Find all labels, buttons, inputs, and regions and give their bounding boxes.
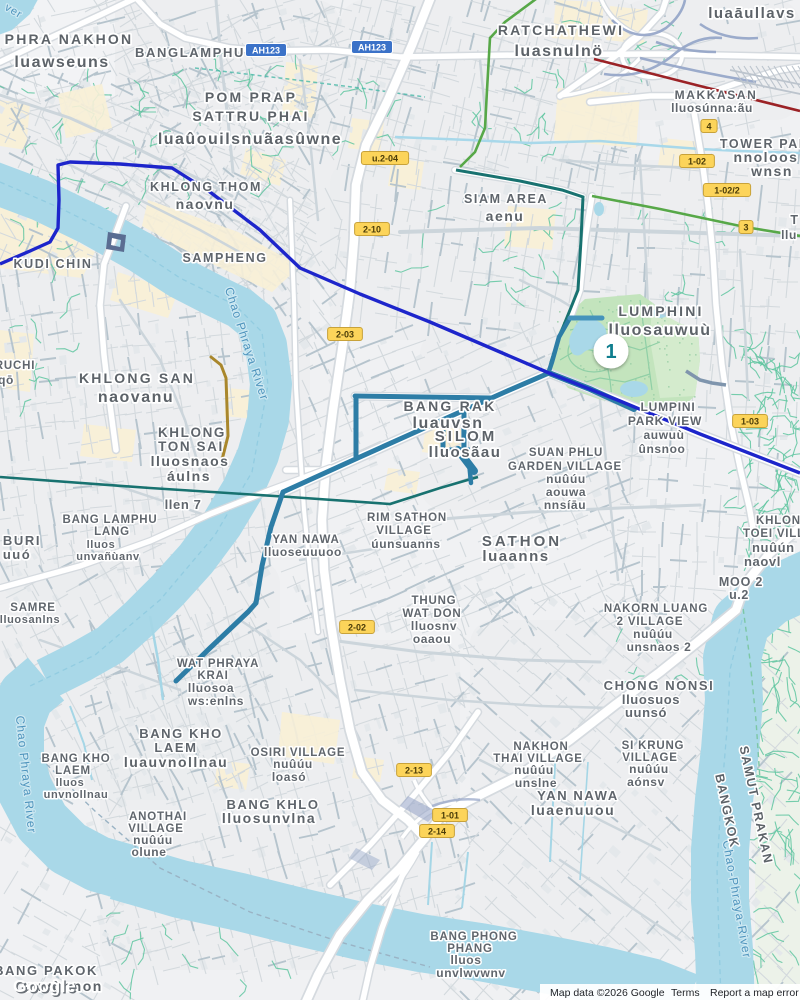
- svg-text:nnsíāu: nnsíāu: [544, 498, 586, 512]
- svg-text:nuûúu: nuûúu: [633, 627, 673, 641]
- svg-text:aenu: aenu: [486, 208, 525, 224]
- svg-text:uunsó: uunsó: [625, 705, 667, 720]
- svg-text:1-01: 1-01: [441, 810, 459, 820]
- svg-text:lluosúnna:ãu: lluosúnna:ãu: [671, 101, 753, 115]
- svg-text:2-10: 2-10: [363, 224, 381, 234]
- svg-text:nuûúu: nuûúu: [629, 762, 669, 776]
- svg-text:luaanns: luaanns: [482, 548, 549, 565]
- svg-text:KHLONG: KHLONG: [756, 515, 800, 527]
- svg-text:lluosnv: lluosnv: [411, 619, 457, 633]
- svg-text:wnsn: wnsn: [750, 163, 793, 179]
- svg-text:RUCHI: RUCHI: [0, 360, 35, 372]
- svg-text:naovl: naovl: [744, 554, 781, 569]
- svg-text:luasnulnö: luasnulnö: [514, 43, 603, 60]
- svg-text:lluosanlns: lluosanlns: [0, 614, 60, 626]
- svg-text:lluos: lluos: [450, 953, 481, 967]
- svg-text:SIAM AREA: SIAM AREA: [464, 192, 548, 206]
- svg-text:auwuù: auwuù: [644, 428, 685, 442]
- svg-text:NAKHON: NAKHON: [513, 741, 568, 753]
- svg-text:BANG PHONG: BANG PHONG: [430, 931, 517, 943]
- svg-text:LANG: LANG: [94, 526, 130, 538]
- svg-text:CHONG NONSI: CHONG NONSI: [604, 678, 715, 693]
- svg-text:AH123: AH123: [252, 45, 280, 55]
- svg-text:loasó: loasó: [272, 770, 306, 784]
- svg-text:3: 3: [743, 222, 748, 232]
- svg-text:MAKKASAN: MAKKASAN: [675, 88, 758, 102]
- svg-text:KHLONG THOM: KHLONG THOM: [150, 180, 262, 194]
- svg-text:LUMPHINI: LUMPHINI: [618, 303, 703, 319]
- svg-text:TOEI VILL: TOEI VILL: [743, 528, 800, 540]
- svg-text:Google: Google: [13, 976, 76, 996]
- svg-text:T: T: [790, 213, 799, 227]
- svg-text:SATTRU PHAI: SATTRU PHAI: [192, 108, 309, 124]
- svg-text:u.2-04: u.2-04: [372, 153, 398, 163]
- svg-text:lluosoa: lluosoa: [188, 681, 234, 695]
- svg-text:POM PRAP: POM PRAP: [205, 89, 297, 105]
- svg-text:áulns: áulns: [167, 468, 211, 484]
- svg-text:RATCHATHEWI: RATCHATHEWI: [498, 22, 624, 38]
- svg-text:ws:enlns: ws:enlns: [187, 694, 244, 708]
- svg-text:Map data ©2026 Google: Map data ©2026 Google: [550, 987, 665, 999]
- svg-text:VILLAGE: VILLAGE: [376, 525, 431, 537]
- svg-text:THUNG: THUNG: [412, 595, 457, 607]
- svg-text:SILOM: SILOM: [435, 428, 498, 445]
- svg-text:SAMRE: SAMRE: [10, 602, 56, 614]
- svg-text:oaaou: oaaou: [413, 632, 451, 646]
- svg-text:llu: llu: [781, 228, 797, 242]
- svg-text:lluosãau: lluosãau: [429, 444, 502, 461]
- svg-text:AH123: AH123: [358, 42, 386, 52]
- svg-text:BURI: BURI: [3, 533, 41, 548]
- svg-text:nuûúu: nuûúu: [273, 757, 313, 771]
- svg-text:MOO 2: MOO 2: [719, 575, 763, 589]
- svg-text:olune: olune: [132, 845, 167, 859]
- svg-text:WAT PHRAYA: WAT PHRAYA: [177, 658, 259, 670]
- svg-text:lluosauwuù: lluosauwuù: [609, 322, 712, 339]
- svg-text:uuó: uuó: [3, 547, 31, 562]
- svg-text:1: 1: [605, 341, 616, 363]
- svg-text:aónsv: aónsv: [627, 775, 665, 789]
- svg-text:TON SAI: TON SAI: [158, 439, 224, 454]
- svg-text:RIM SATHON: RIM SATHON: [367, 512, 447, 524]
- svg-text:nuûúu: nuûúu: [514, 763, 554, 777]
- svg-text:unslne: unslne: [515, 776, 557, 790]
- svg-text:unvañùanv: unvañùanv: [76, 551, 140, 563]
- svg-text:BANG LAMPHU: BANG LAMPHU: [62, 514, 157, 526]
- svg-text:BANG KHO: BANG KHO: [41, 753, 110, 765]
- svg-text:PARK VIEW: PARK VIEW: [628, 414, 702, 428]
- svg-text:naovanu: naovanu: [98, 389, 174, 406]
- svg-text:unvnollnau: unvnollnau: [44, 789, 109, 801]
- svg-text:2-02: 2-02: [348, 622, 366, 632]
- svg-text:unvlwvwnv: unvlwvwnv: [436, 966, 505, 980]
- svg-text:luawseuns: luawseuns: [14, 54, 109, 71]
- svg-text:BANG KHO: BANG KHO: [139, 726, 223, 741]
- svg-text:YAN NAWA: YAN NAWA: [537, 788, 619, 803]
- svg-text:lluosunvlna: lluosunvlna: [222, 810, 316, 826]
- svg-text:qō: qō: [0, 373, 14, 387]
- svg-text:1-03: 1-03: [741, 416, 759, 426]
- svg-text:luaenuuou: luaenuuou: [531, 802, 615, 818]
- svg-text:PHRA NAKHON: PHRA NAKHON: [5, 31, 134, 47]
- svg-text:1-02/2: 1-02/2: [714, 185, 740, 195]
- svg-text:lluos: lluos: [56, 777, 85, 789]
- svg-text:naovnu: naovnu: [176, 196, 235, 212]
- svg-text:Report a map error: Report a map error: [710, 987, 799, 999]
- svg-text:KHLONG SAN: KHLONG SAN: [79, 370, 195, 386]
- svg-text:Terms: Terms: [671, 987, 700, 999]
- svg-text:luaāullavs: luaāullavs: [708, 5, 796, 22]
- svg-text:2-03: 2-03: [336, 329, 354, 339]
- svg-text:4: 4: [706, 121, 711, 131]
- svg-text:2-14: 2-14: [428, 826, 446, 836]
- svg-text:SAMPHENG: SAMPHENG: [182, 251, 267, 265]
- svg-text:unsnaos 2: unsnaos 2: [627, 640, 692, 654]
- svg-text:nuûúu: nuûúu: [546, 472, 586, 486]
- svg-text:NAKORN LUANG: NAKORN LUANG: [604, 603, 708, 615]
- svg-text:ûnsnoo: ûnsnoo: [639, 442, 686, 456]
- svg-text:u.2: u.2: [729, 588, 749, 602]
- svg-text:BANG RAK: BANG RAK: [403, 398, 496, 414]
- svg-text:úunsuanns: úunsuanns: [371, 537, 440, 551]
- svg-text:KHLONG: KHLONG: [158, 425, 226, 440]
- svg-text:SUAN PHLU: SUAN PHLU: [529, 447, 603, 459]
- svg-text:ANOTHAI: ANOTHAI: [129, 811, 187, 823]
- svg-text:BANGLAMPHU: BANGLAMPHU: [135, 45, 245, 60]
- svg-text:LUMPINI: LUMPINI: [641, 400, 696, 414]
- svg-text:lluosnaos: lluosnaos: [151, 453, 230, 469]
- svg-text:lluoseuuuoo: lluoseuuuoo: [264, 545, 342, 559]
- svg-text:lluos: lluos: [87, 539, 116, 551]
- svg-text:llen 7: llen 7: [165, 497, 202, 512]
- svg-text:luauvnollnau: luauvnollnau: [124, 754, 228, 770]
- svg-text:aouwa: aouwa: [546, 485, 586, 499]
- svg-text:LAEM: LAEM: [55, 765, 91, 777]
- svg-text:2-13: 2-13: [405, 765, 423, 775]
- svg-text:1-02: 1-02: [688, 156, 706, 166]
- svg-text:luaûouilsnuãasûwne: luaûouilsnuãasûwne: [158, 131, 342, 148]
- svg-text:LAEM: LAEM: [154, 740, 197, 755]
- svg-text:SI KRUNG: SI KRUNG: [622, 740, 685, 752]
- svg-text:nuûún: nuûún: [752, 540, 795, 555]
- svg-text:KUDI CHIN: KUDI CHIN: [14, 257, 93, 271]
